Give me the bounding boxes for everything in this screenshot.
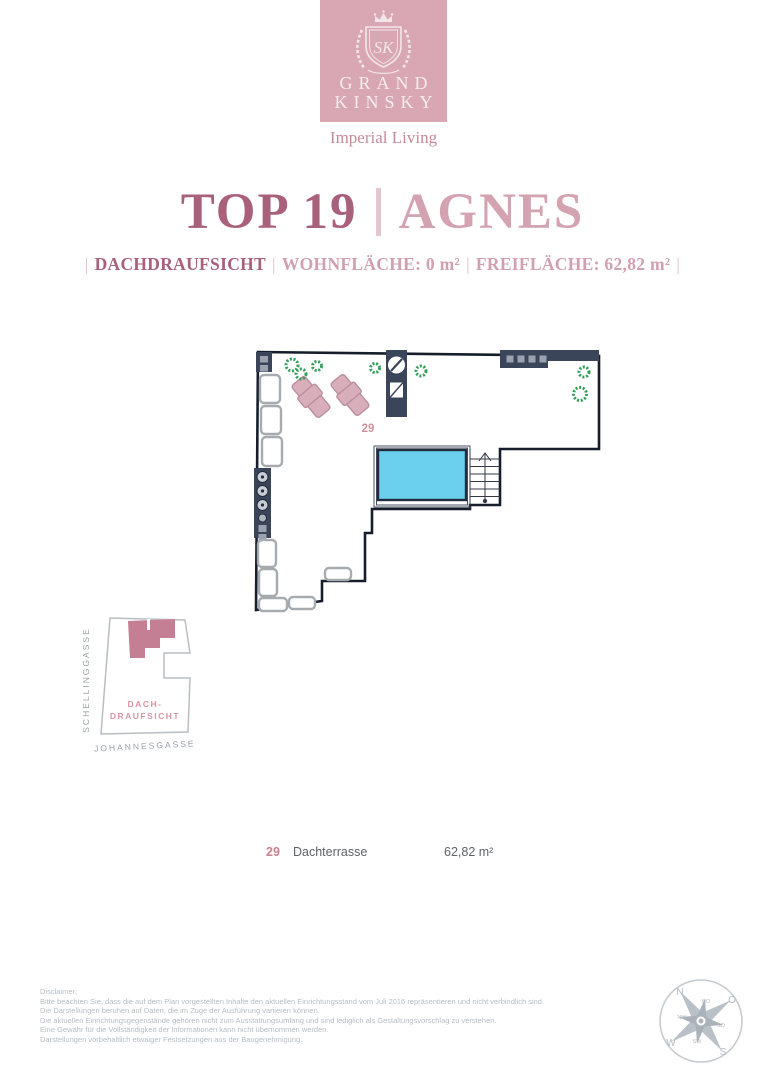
compass-label-n: N	[676, 987, 683, 998]
page-subtitle: |DACHDRAUFSICHT|WOHNFLÄCHE: 0 m²|FREIFLÄ…	[0, 254, 765, 275]
brand-tagline: Imperial Living	[320, 122, 447, 148]
compass-label-sw: SW	[693, 1039, 703, 1045]
brand-logo: SK GRAND KINSKY	[320, 0, 447, 122]
brand-crest-icon: SK	[320, 4, 447, 74]
planter	[325, 568, 351, 580]
disclaimer-line: Bitte beachten Sie, dass die auf dem Pla…	[40, 997, 600, 1007]
brand-name-line2: KINSKY	[328, 93, 438, 112]
compass-rose-icon: N O S W NO SO SW NW	[657, 977, 745, 1065]
roof-terrace-floor-plan: 29	[240, 340, 620, 632]
subtitle-pipe: |	[670, 254, 686, 274]
subtitle-pipe: |	[266, 254, 282, 274]
location-mini-map: DACH- DRAUFSICHT SCHELLINGGASSE JOHANNES…	[76, 610, 218, 760]
compass-label-o: O	[728, 995, 736, 1006]
compass-label-so: SO	[717, 1023, 726, 1029]
pool	[378, 450, 466, 500]
legend-room-name: Dachterrasse	[293, 845, 367, 859]
room-number-label: 29	[362, 423, 375, 435]
roof-edge-band	[548, 350, 599, 361]
map-view-label-line2: DRAUFSICHT	[110, 711, 180, 721]
disclaimer-heading: Disclaimer:	[40, 987, 600, 997]
planter	[262, 437, 282, 466]
subtitle-free-area: FREIFLÄCHE: 62,82 m²	[476, 254, 671, 274]
subtitle-living-area: WOHNFLÄCHE: 0 m²	[282, 254, 460, 274]
compass-label-nw: NW	[677, 1015, 687, 1021]
planter	[260, 375, 280, 403]
page-title: TOP 19 AGNES	[0, 183, 765, 241]
brand-name-line1: GRAND	[333, 74, 433, 93]
disclaimer-line: Darstellungen vorbehaltlich etwaiger Fes…	[40, 1035, 600, 1045]
disclaimer-line: Die aktuellen Einrichtungsgegenstände ge…	[40, 1016, 600, 1026]
planter	[259, 598, 287, 611]
legend-room-number: 29	[266, 845, 280, 859]
legend-room-area: 62,82 m²	[444, 845, 493, 859]
disclaimer-line: Die Darstellungen beruhen auf Daten, die…	[40, 1006, 600, 1016]
street-label-johannesgasse: JOHANNESGASSE	[94, 738, 196, 753]
street-label-schellinggasse: SCHELLINGGASSE	[81, 627, 91, 732]
brand-monogram: SK	[374, 38, 396, 57]
planter	[261, 406, 281, 434]
title-unit: TOP 19	[181, 183, 358, 241]
subtitle-pipe: |	[460, 254, 476, 274]
planter	[289, 597, 315, 609]
compass-label-w: W	[666, 1038, 676, 1049]
title-divider	[376, 188, 381, 236]
map-view-label-line1: DACH-	[128, 699, 163, 709]
disclaimer: Disclaimer: Bitte beachten Sie, dass die…	[40, 987, 600, 1045]
planter	[259, 569, 277, 596]
subtitle-view: DACHDRAUFSICHT	[95, 254, 266, 274]
unit-highlight-gap	[147, 619, 150, 630]
title-name: AGNES	[399, 183, 585, 241]
compass-label-no: NO	[702, 999, 711, 1005]
compass-label-s: S	[720, 1047, 727, 1058]
disclaimer-line: Eine Gewähr für die Vollständigkeit der …	[40, 1025, 600, 1035]
planter	[258, 540, 276, 567]
subtitle-pipe: |	[79, 254, 95, 274]
